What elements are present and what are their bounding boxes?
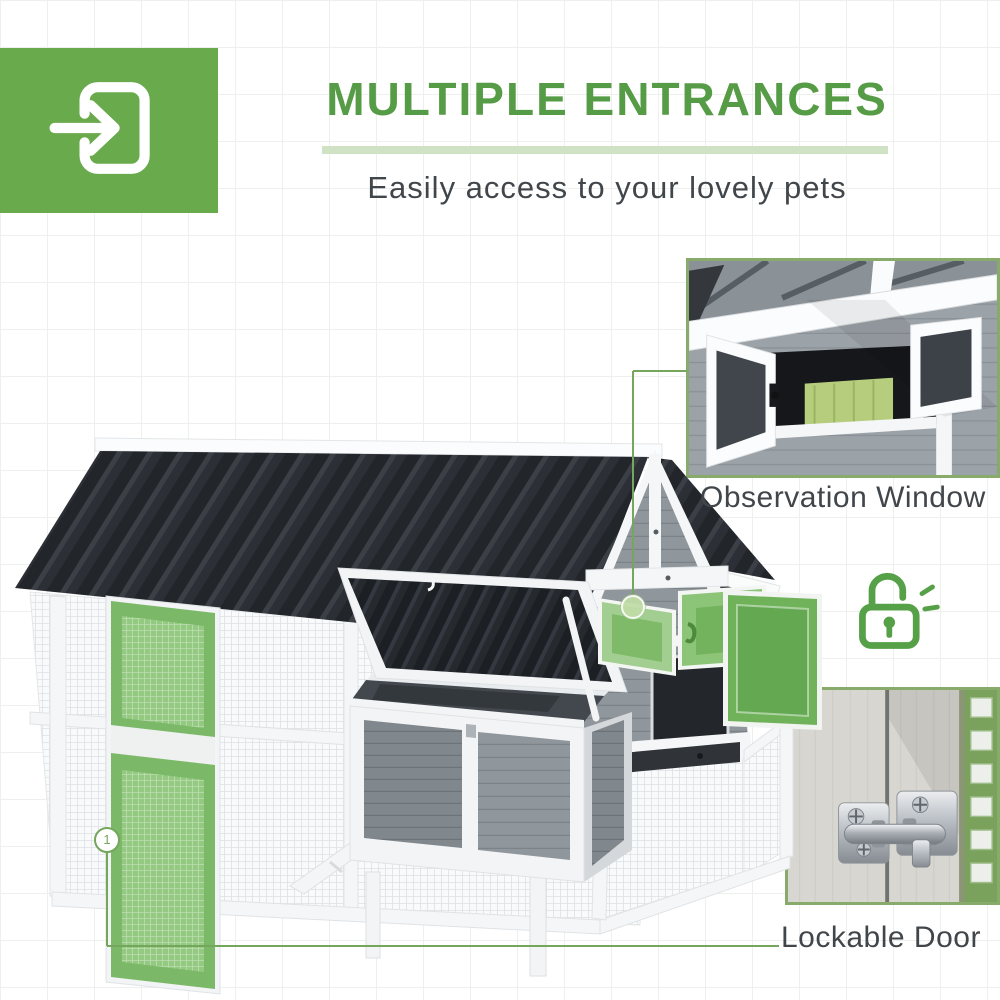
entrance-icon-block <box>0 48 218 213</box>
observation-window-marker-dot <box>621 595 645 619</box>
lockable-door-label: Lockable Door <box>781 921 981 955</box>
page-title: MULTIPLE ENTRANCES <box>214 72 1000 126</box>
observation-window-label: Observation Window <box>700 481 986 515</box>
door-enter-arrow-icon <box>45 68 165 188</box>
title-underline <box>322 146 888 154</box>
unlocked-padlock-icon <box>849 564 945 654</box>
page-subtitle: Easily access to your lovely pets <box>214 170 1000 206</box>
lockable-door-marker: 1 <box>94 827 120 853</box>
window-right-door <box>911 317 982 418</box>
product-feature-image: MULTIPLE ENTRANCES Easily access to your… <box>0 0 1000 1000</box>
green-run-door <box>106 596 220 994</box>
